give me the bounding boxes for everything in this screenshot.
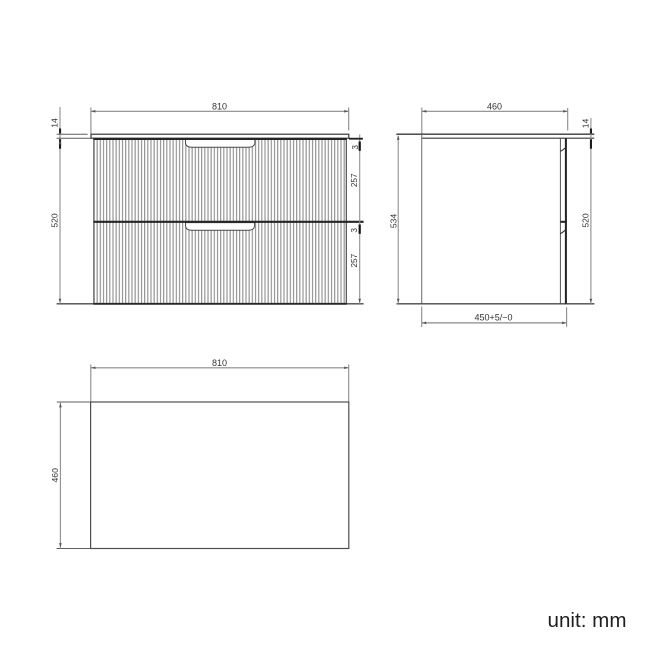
svg-text:14: 14 bbox=[50, 118, 60, 128]
svg-text:257: 257 bbox=[350, 253, 359, 267]
svg-text:810: 810 bbox=[212, 358, 227, 368]
svg-text:460: 460 bbox=[487, 102, 502, 112]
svg-text:460: 460 bbox=[50, 468, 60, 483]
svg-text:unit: mm: unit: mm bbox=[548, 609, 627, 632]
svg-text:3: 3 bbox=[351, 145, 360, 150]
svg-text:257: 257 bbox=[350, 173, 359, 187]
svg-text:520: 520 bbox=[581, 213, 591, 228]
svg-text:14: 14 bbox=[580, 119, 590, 129]
svg-text:520: 520 bbox=[50, 213, 60, 228]
svg-text:3: 3 bbox=[350, 228, 359, 233]
svg-text:534: 534 bbox=[389, 214, 399, 229]
svg-text:810: 810 bbox=[212, 102, 227, 112]
svg-text:450+5/−0: 450+5/−0 bbox=[474, 312, 512, 322]
